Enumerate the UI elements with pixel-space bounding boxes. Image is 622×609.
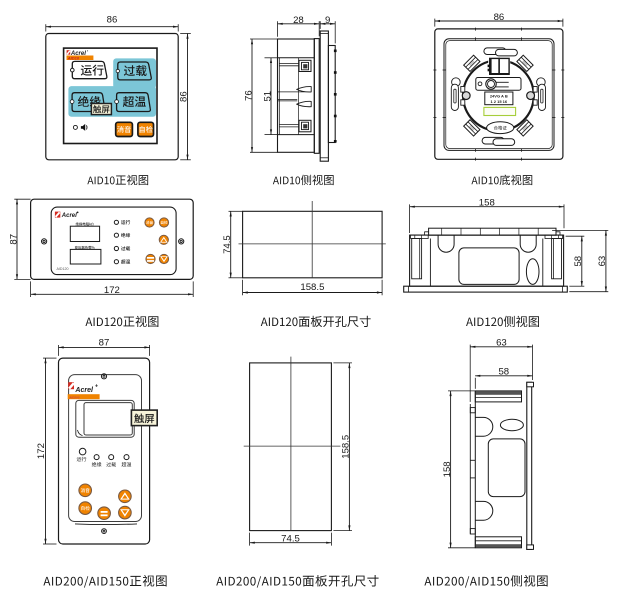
svg-text:158.5: 158.5 xyxy=(300,282,324,293)
svg-text:158: 158 xyxy=(479,197,495,208)
svg-text:172: 172 xyxy=(36,443,47,459)
svg-text:AID120: AID120 xyxy=(57,267,69,271)
svg-text:58: 58 xyxy=(573,256,584,267)
svg-text:158: 158 xyxy=(442,461,453,477)
svg-text:Acrel: Acrel xyxy=(61,213,77,219)
svg-text:+: + xyxy=(95,384,98,390)
svg-text:86: 86 xyxy=(494,12,505,23)
svg-text:Acrel: Acrel xyxy=(74,387,94,394)
svg-text:86: 86 xyxy=(178,91,189,102)
svg-text:9: 9 xyxy=(325,15,330,26)
svg-text:AID10: AID10 xyxy=(67,56,80,61)
svg-text:28: 28 xyxy=(293,15,304,26)
svg-text:74.5: 74.5 xyxy=(222,235,233,254)
svg-text:76: 76 xyxy=(243,90,254,101)
svg-text:51: 51 xyxy=(262,91,273,102)
svg-text:86: 86 xyxy=(107,15,118,26)
svg-text:63: 63 xyxy=(597,256,608,267)
svg-text:AID200: AID200 xyxy=(68,395,80,399)
svg-text:1 2 15 16: 1 2 15 16 xyxy=(490,99,507,104)
svg-text:87: 87 xyxy=(8,234,19,245)
svg-text:24VG A B: 24VG A B xyxy=(490,94,508,99)
svg-text:172: 172 xyxy=(104,285,120,296)
svg-text:58: 58 xyxy=(498,367,509,378)
svg-text:74.5: 74.5 xyxy=(281,533,300,544)
svg-text:158.5: 158.5 xyxy=(341,435,352,459)
svg-text:63: 63 xyxy=(496,338,507,349)
svg-text:87: 87 xyxy=(99,337,110,348)
